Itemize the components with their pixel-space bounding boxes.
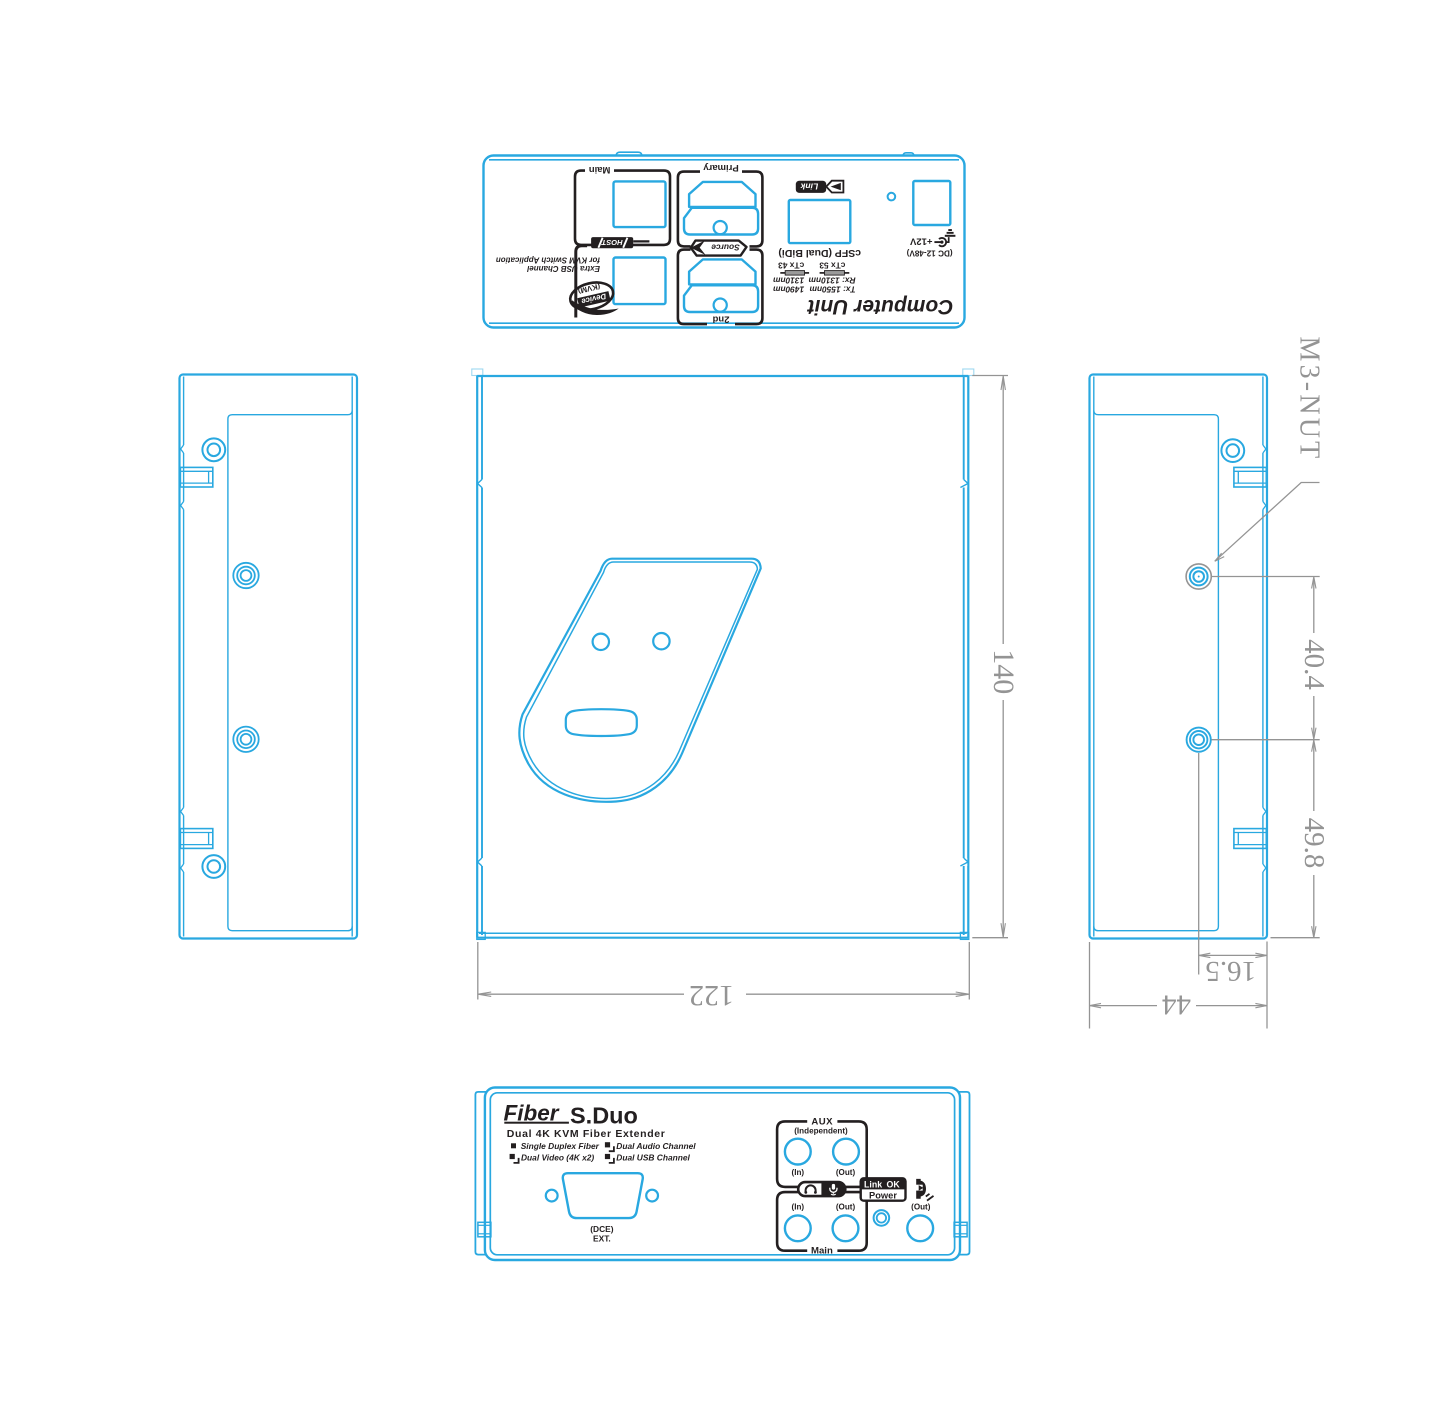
svg-text:cTx 53: cTx 53	[819, 260, 845, 270]
svg-text:cTx 43: cTx 43	[778, 260, 804, 270]
svg-text:Link: Link	[799, 181, 818, 191]
svg-text:1310nm: 1310nm	[772, 276, 804, 286]
svg-text:Rx: 1310nm: Rx: 1310nm	[808, 276, 856, 286]
svg-text:Fiber: Fiber	[504, 1100, 560, 1125]
svg-text:Main: Main	[811, 1245, 833, 1256]
svg-text:M3-NUT: M3-NUT	[1294, 337, 1325, 462]
svg-text:+12V: +12V	[909, 236, 932, 247]
svg-text:(Out): (Out)	[836, 1168, 856, 1177]
svg-text:EXT.: EXT.	[593, 1234, 611, 1244]
svg-text:Main: Main	[589, 164, 611, 175]
svg-text:(Out): (Out)	[836, 1203, 856, 1212]
svg-text:2nd: 2nd	[712, 314, 729, 325]
svg-text:Primary: Primary	[703, 162, 739, 173]
svg-text:40.4: 40.4	[1298, 639, 1330, 690]
svg-text:44: 44	[1162, 989, 1192, 1021]
svg-text:cSFP (Dual BiDi): cSFP (Dual BiDi)	[778, 247, 861, 259]
svg-text:49.8: 49.8	[1298, 818, 1330, 869]
svg-text:(In): (In)	[792, 1168, 805, 1177]
svg-text:Dual USB Channel: Dual USB Channel	[616, 1153, 690, 1163]
svg-text:Link: Link	[864, 1180, 882, 1190]
svg-text:for KVM Switch Application: for KVM Switch Application	[496, 256, 600, 265]
svg-text:(Independent): (Independent)	[794, 1126, 848, 1135]
svg-text:140: 140	[987, 649, 1020, 694]
svg-text:(In): (In)	[792, 1203, 805, 1212]
svg-text:Dual Video (4K x2): Dual Video (4K x2)	[521, 1153, 594, 1163]
svg-text:Power: Power	[869, 1191, 897, 1201]
svg-text:Computer Unit: Computer Unit	[807, 295, 954, 318]
svg-text:Dual Audio Channel: Dual Audio Channel	[616, 1141, 696, 1151]
svg-text:Dual 4K KVM Fiber Extender: Dual 4K KVM Fiber Extender	[507, 1128, 666, 1140]
svg-text:Source: Source	[711, 243, 740, 253]
svg-text:122: 122	[689, 979, 734, 1012]
svg-text:16.5: 16.5	[1205, 955, 1256, 987]
svg-text:S.Duo: S.Duo	[570, 1103, 638, 1129]
svg-text:OK: OK	[887, 1180, 901, 1190]
svg-text:HOST: HOST	[600, 238, 622, 247]
svg-text:Single Duplex Fiber: Single Duplex Fiber	[521, 1141, 600, 1151]
svg-text:(DC 12-48V): (DC 12-48V)	[906, 248, 952, 257]
svg-text:(Out): (Out)	[911, 1203, 931, 1212]
svg-text:(DCE): (DCE)	[590, 1224, 613, 1234]
